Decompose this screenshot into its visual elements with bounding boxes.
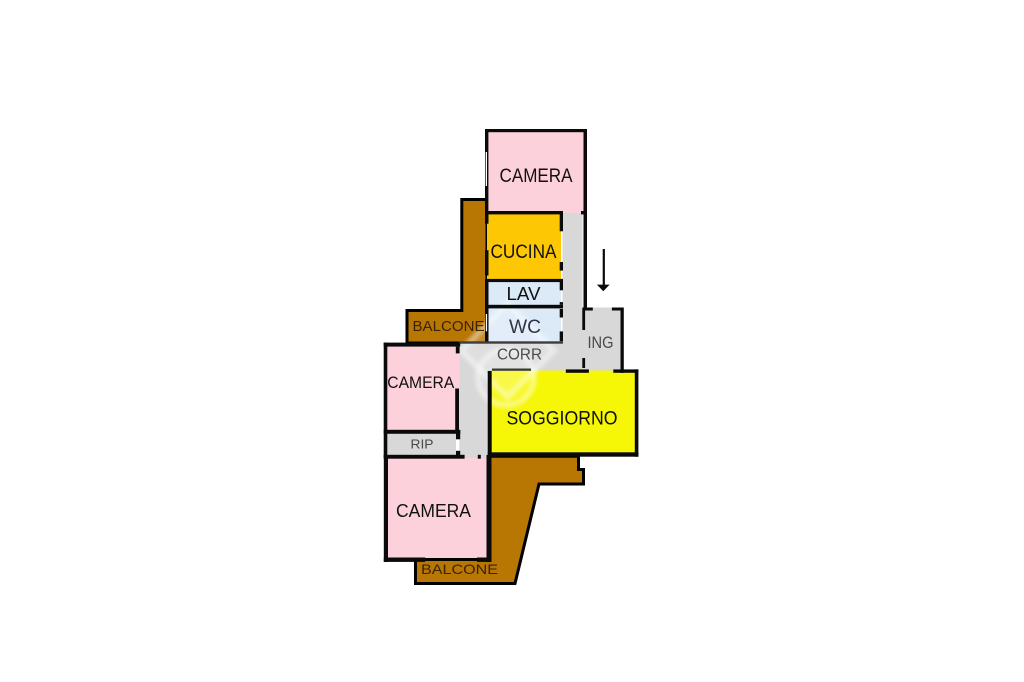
svg-text:SOGGIORNO: SOGGIORNO bbox=[507, 408, 618, 430]
svg-text:RIP: RIP bbox=[411, 438, 434, 452]
svg-text:LAV: LAV bbox=[507, 284, 541, 304]
svg-text:CAMERA: CAMERA bbox=[396, 501, 471, 521]
svg-text:ING: ING bbox=[588, 334, 614, 352]
svg-text:CORR: CORR bbox=[497, 347, 542, 364]
svg-text:WC: WC bbox=[509, 317, 541, 338]
svg-text:BALCONE: BALCONE bbox=[413, 318, 485, 335]
svg-text:CAMERA: CAMERA bbox=[500, 165, 573, 187]
svg-text:BALCONE: BALCONE bbox=[421, 561, 498, 577]
svg-text:CUCINA: CUCINA bbox=[491, 241, 557, 263]
svg-text:CAMERA: CAMERA bbox=[387, 373, 455, 392]
